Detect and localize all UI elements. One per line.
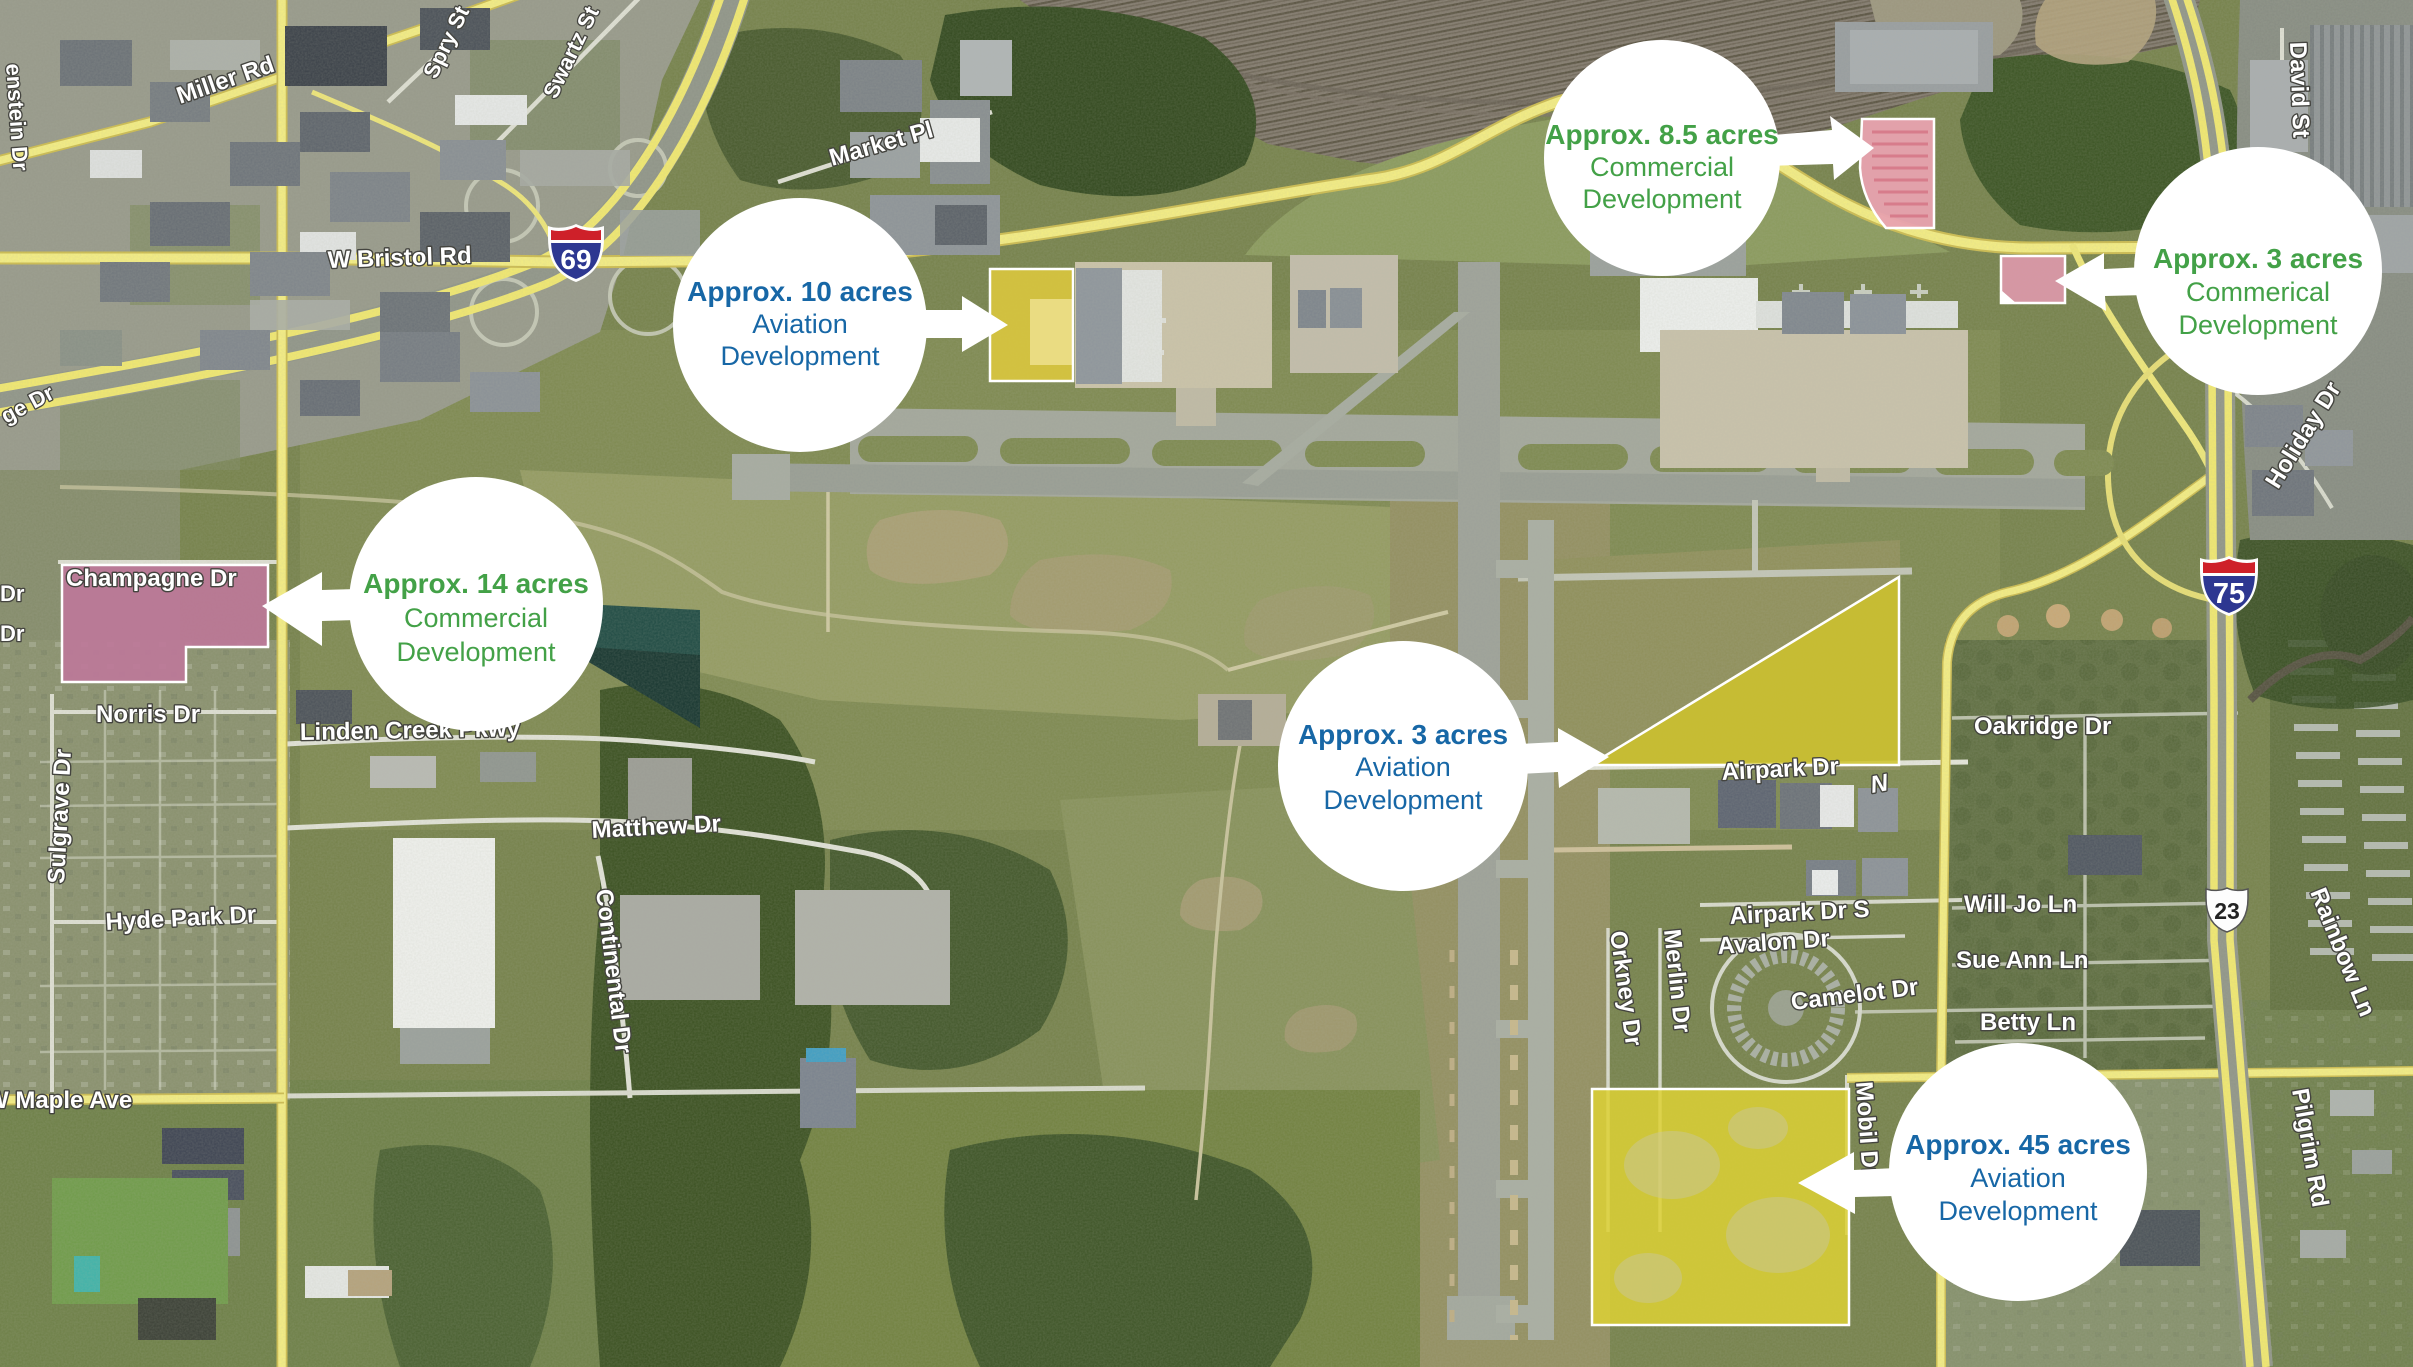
svg-text:Commercial: Commercial	[1590, 152, 1734, 182]
svg-text:Norris Dr: Norris Dr	[96, 701, 200, 728]
svg-text:Development: Development	[720, 341, 880, 371]
svg-text:Commercial: Commercial	[404, 603, 548, 633]
svg-text:Champagne Dr: Champagne Dr	[66, 565, 237, 592]
svg-text:69: 69	[560, 244, 591, 275]
svg-text:Development: Development	[2178, 310, 2338, 340]
svg-text:Development: Development	[1938, 1196, 2098, 1226]
svg-text:Development: Development	[1582, 184, 1742, 214]
svg-text:Aviation: Aviation	[1355, 752, 1451, 782]
svg-text:W Bristol Rd: W Bristol Rd	[327, 242, 472, 274]
svg-text:Betty Ln: Betty Ln	[1980, 1009, 2076, 1036]
svg-text:Dr: Dr	[0, 581, 25, 606]
svg-text:Approx. 3 acres: Approx. 3 acres	[2153, 243, 2363, 274]
svg-text:Dr: Dr	[0, 621, 25, 646]
svg-text:Aviation: Aviation	[752, 309, 848, 339]
svg-text:23: 23	[2214, 898, 2240, 924]
svg-text:Development: Development	[1323, 785, 1483, 815]
svg-text:75: 75	[2213, 578, 2245, 610]
svg-text:W Maple Ave: W Maple Ave	[0, 1087, 132, 1114]
svg-text:Approx. 3 acres: Approx. 3 acres	[1298, 719, 1508, 750]
svg-text:David St: David St	[2284, 41, 2314, 138]
svg-text:Oakridge Dr: Oakridge Dr	[1974, 713, 2111, 740]
svg-text:Sue Ann Ln: Sue Ann Ln	[1956, 947, 2088, 974]
svg-text:Development: Development	[396, 637, 556, 667]
svg-text:Approx. 14 acres: Approx. 14 acres	[363, 568, 589, 599]
svg-text:Commerical: Commerical	[2186, 277, 2330, 307]
svg-text:Aviation: Aviation	[1970, 1163, 2066, 1193]
svg-text:Approx. 45 acres: Approx. 45 acres	[1905, 1129, 2131, 1160]
svg-text:Will Jo Ln: Will Jo Ln	[1964, 891, 2077, 918]
svg-text:Approx. 10 acres: Approx. 10 acres	[687, 276, 913, 307]
svg-text:Approx. 8.5 acres: Approx. 8.5 acres	[1545, 119, 1778, 150]
